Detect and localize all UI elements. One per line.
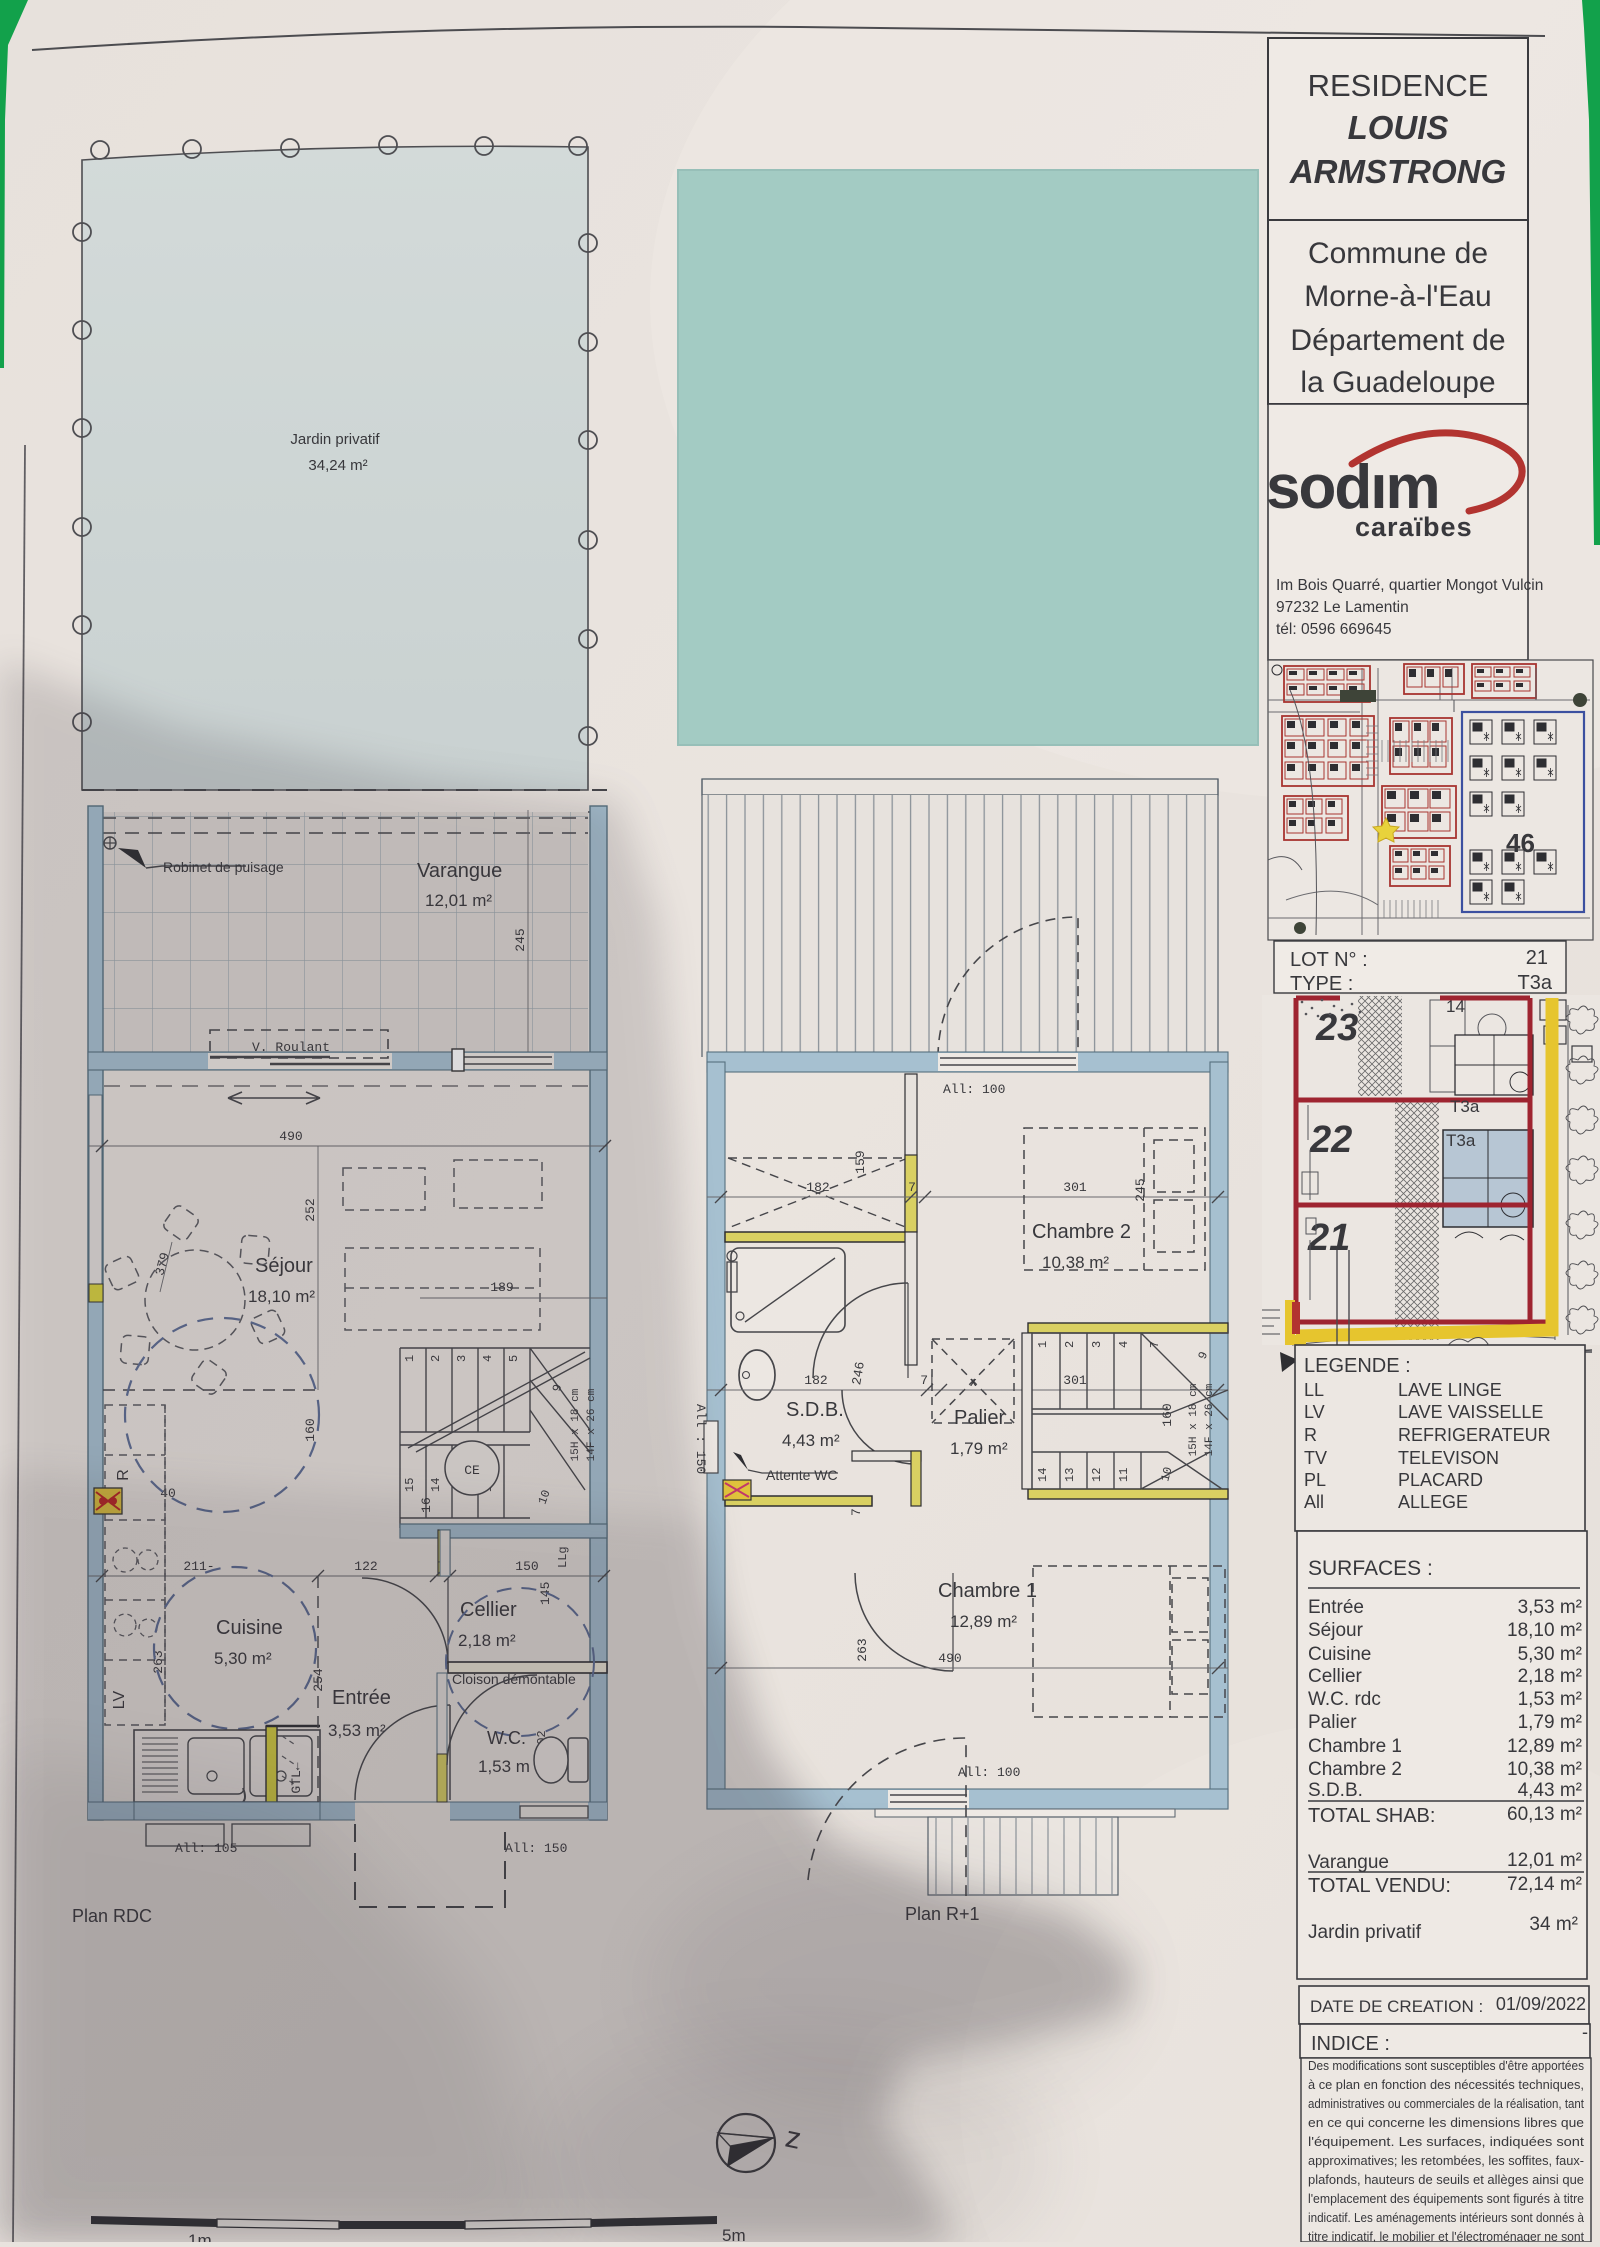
svg-text:S.D.B.: S.D.B. <box>1308 1780 1363 1801</box>
svg-text:60,13 m²: 60,13 m² <box>1507 1804 1582 1825</box>
svg-text:263: 263 <box>855 1638 870 1661</box>
svg-text:12,89 m²: 12,89 m² <box>1507 1736 1582 1757</box>
svg-text:245: 245 <box>1133 1178 1148 1201</box>
svg-text:182: 182 <box>806 1180 829 1195</box>
svg-text:SURFACES :: SURFACES : <box>1308 1557 1433 1580</box>
svg-text:Jardin privatif: Jardin privatif <box>290 431 380 448</box>
svg-text:à ce plan en fonction des néce: à ce plan en fonction des nécessités tec… <box>1308 2077 1584 2092</box>
svg-text:LV: LV <box>1304 1402 1325 1422</box>
svg-text:LAVE LINGE: LAVE LINGE <box>1398 1380 1502 1400</box>
svg-text:Chambre 1: Chambre 1 <box>938 1580 1037 1602</box>
svg-text:TELEVISON: TELEVISON <box>1398 1448 1499 1468</box>
svg-text:DATE DE CREATION :: DATE DE CREATION : <box>1310 1997 1483 2016</box>
svg-text:All: 100: All: 100 <box>943 1082 1005 1097</box>
svg-text:INDICE :: INDICE : <box>1311 2033 1390 2055</box>
svg-text:14: 14 <box>1446 997 1465 1016</box>
svg-text:182: 182 <box>804 1373 827 1388</box>
svg-text:5,30 m²: 5,30 m² <box>1518 1644 1582 1665</box>
svg-text:Chambre 2: Chambre 2 <box>1308 1759 1402 1780</box>
svg-text:34,24 m²: 34,24 m² <box>308 457 367 474</box>
svg-text:All: All <box>1304 1492 1324 1512</box>
svg-text:01/09/2022: 01/09/2022 <box>1496 1994 1586 2014</box>
svg-text:46: 46 <box>1506 828 1535 858</box>
svg-text:caraïbes: caraïbes <box>1355 512 1473 542</box>
svg-text:14F x 26 cm: 14F x 26 cm <box>1204 1383 1216 1456</box>
svg-text:Entrée: Entrée <box>1308 1597 1364 1618</box>
svg-text:Cuisine: Cuisine <box>1308 1644 1371 1665</box>
svg-text:23: 23 <box>1315 1007 1358 1049</box>
svg-text:R: R <box>1304 1425 1317 1445</box>
svg-text:3,53 m²: 3,53 m² <box>1518 1597 1582 1618</box>
svg-text:7: 7 <box>849 1508 864 1516</box>
svg-text:1,79 m²: 1,79 m² <box>950 1439 1008 1458</box>
svg-text:x: x <box>970 1374 977 1389</box>
svg-text:1,53 m²: 1,53 m² <box>1518 1689 1582 1710</box>
svg-text:TV: TV <box>1304 1448 1327 1468</box>
svg-text:T3a: T3a <box>1450 1097 1480 1116</box>
svg-text:titre indicatif, le mobilier e: titre indicatif, le mobilier et l'électr… <box>1308 2229 1584 2242</box>
svg-text:21: 21 <box>1307 1217 1350 1259</box>
svg-text:12,89 m²: 12,89 m² <box>950 1612 1017 1631</box>
svg-text:11: 11 <box>1117 1468 1131 1482</box>
svg-text:Département de: Département de <box>1290 324 1505 357</box>
svg-text:Jardin privatif: Jardin privatif <box>1308 1922 1422 1943</box>
svg-text:Im Bois Quarré, quartier Mongo: Im Bois Quarré, quartier Mongot Vulcin <box>1276 577 1543 594</box>
svg-text:72,14 m²: 72,14 m² <box>1507 1874 1582 1895</box>
svg-text:4,43 m²: 4,43 m² <box>782 1431 840 1450</box>
svg-text:T3a: T3a <box>1518 972 1553 994</box>
svg-text:Cellier: Cellier <box>1308 1666 1363 1687</box>
svg-text:4: 4 <box>1117 1341 1131 1348</box>
svg-text:tél: 0596 669645: tél: 0596 669645 <box>1276 621 1392 638</box>
svg-text:Morne-à-l'Eau: Morne-à-l'Eau <box>1304 280 1491 313</box>
svg-text:LOT N° :: LOT N° : <box>1290 949 1368 971</box>
svg-text:ARMSTRONG: ARMSTRONG <box>1289 153 1506 190</box>
svg-text:1: 1 <box>1036 1341 1050 1348</box>
svg-text:-: - <box>1582 2022 1588 2042</box>
svg-text:TOTAL VENDU:: TOTAL VENDU: <box>1308 1875 1451 1897</box>
svg-text:LL: LL <box>1304 1380 1324 1400</box>
svg-text:7: 7 <box>1148 1341 1162 1348</box>
svg-text:plafonds, hauteurs de seuils e: plafonds, hauteurs de seuils et allèges … <box>1308 2172 1584 2187</box>
svg-text:LOUIS: LOUIS <box>1348 109 1449 146</box>
svg-text:301: 301 <box>1063 1180 1087 1195</box>
svg-text:Varangue: Varangue <box>1308 1852 1389 1873</box>
svg-text:3: 3 <box>1090 1341 1104 1348</box>
svg-text:159: 159 <box>853 1150 868 1173</box>
svg-text:160: 160 <box>1160 1403 1175 1426</box>
svg-text:Attente WC: Attente WC <box>766 1467 838 1483</box>
svg-text:la Guadeloupe: la Guadeloupe <box>1300 366 1495 399</box>
svg-text:Commune de: Commune de <box>1308 237 1488 270</box>
svg-text:Palier: Palier <box>954 1407 1005 1429</box>
svg-text:l'emplacement des équipements: l'emplacement des équipements sont figur… <box>1308 2191 1584 2206</box>
svg-text:approximatives; les retombées,: approximatives; les retombées, les soffi… <box>1308 2153 1584 2168</box>
svg-text:12,01 m²: 12,01 m² <box>1507 1850 1582 1871</box>
svg-text:indicatif. Les aménagements in: indicatif. Les aménagements intérieurs s… <box>1308 2210 1585 2225</box>
svg-text:Palier: Palier <box>1308 1712 1357 1733</box>
svg-text:Chambre 1: Chambre 1 <box>1308 1736 1402 1757</box>
svg-text:10,38 m²: 10,38 m² <box>1507 1759 1582 1780</box>
svg-text:97232 Le Lamentin: 97232 Le Lamentin <box>1276 599 1409 616</box>
svg-text:7|: 7| <box>920 1373 936 1388</box>
svg-text:2: 2 <box>1063 1341 1077 1348</box>
svg-text:22: 22 <box>1309 1119 1352 1161</box>
svg-text:490: 490 <box>938 1651 961 1666</box>
svg-text:All: 100: All: 100 <box>958 1765 1020 1780</box>
svg-text:en ce qui concerne les dimensi: en ce qui concerne les dimensions libres… <box>1308 2115 1584 2130</box>
svg-text:TYPE :: TYPE : <box>1290 973 1353 995</box>
svg-text:301: 301 <box>1063 1373 1087 1388</box>
svg-text:12: 12 <box>1090 1468 1104 1482</box>
svg-text:W.C. rdc: W.C. rdc <box>1308 1689 1381 1710</box>
svg-text:Des modifications sont suscept: Des modifications sont susceptibles d'êt… <box>1308 2058 1584 2073</box>
svg-text:1,79 m²: 1,79 m² <box>1518 1712 1582 1733</box>
svg-text:administratives ou commerciale: administratives ou commerciales de la ré… <box>1308 2096 1584 2111</box>
svg-text:PL: PL <box>1304 1470 1326 1490</box>
svg-text:RESIDENCE: RESIDENCE <box>1308 68 1489 103</box>
svg-text:ALLEGE: ALLEGE <box>1398 1492 1468 1512</box>
svg-text:LAVE VAISSELLE: LAVE VAISSELLE <box>1398 1402 1543 1422</box>
svg-text:4,43 m²: 4,43 m² <box>1518 1780 1582 1801</box>
svg-text:REFRIGERATEUR: REFRIGERATEUR <box>1398 1425 1551 1445</box>
svg-text:10,38 m²: 10,38 m² <box>1042 1253 1109 1272</box>
svg-text:T3a: T3a <box>1446 1131 1476 1150</box>
svg-text:34 m²: 34 m² <box>1529 1914 1578 1935</box>
svg-text:2,18 m²: 2,18 m² <box>1518 1666 1582 1687</box>
svg-text:LEGENDE :: LEGENDE : <box>1304 1355 1411 1377</box>
svg-text:S.D.B.: S.D.B. <box>786 1399 844 1421</box>
svg-text:PLACARD: PLACARD <box>1398 1470 1483 1490</box>
svg-text:Séjour: Séjour <box>1308 1620 1364 1641</box>
svg-text:14: 14 <box>1036 1468 1050 1482</box>
svg-text:l'équipement. Les surfaces, in: l'équipement. Les surfaces, indiquées so… <box>1308 2134 1584 2149</box>
svg-text:13: 13 <box>1063 1468 1077 1482</box>
svg-text:21: 21 <box>1526 947 1548 969</box>
svg-text:18,10 m²: 18,10 m² <box>1507 1620 1582 1641</box>
svg-text:15H x 18 cm: 15H x 18 cm <box>1188 1383 1200 1456</box>
svg-text:TOTAL SHAB:: TOTAL SHAB: <box>1308 1805 1435 1827</box>
svg-text:Chambre 2: Chambre 2 <box>1032 1221 1131 1243</box>
